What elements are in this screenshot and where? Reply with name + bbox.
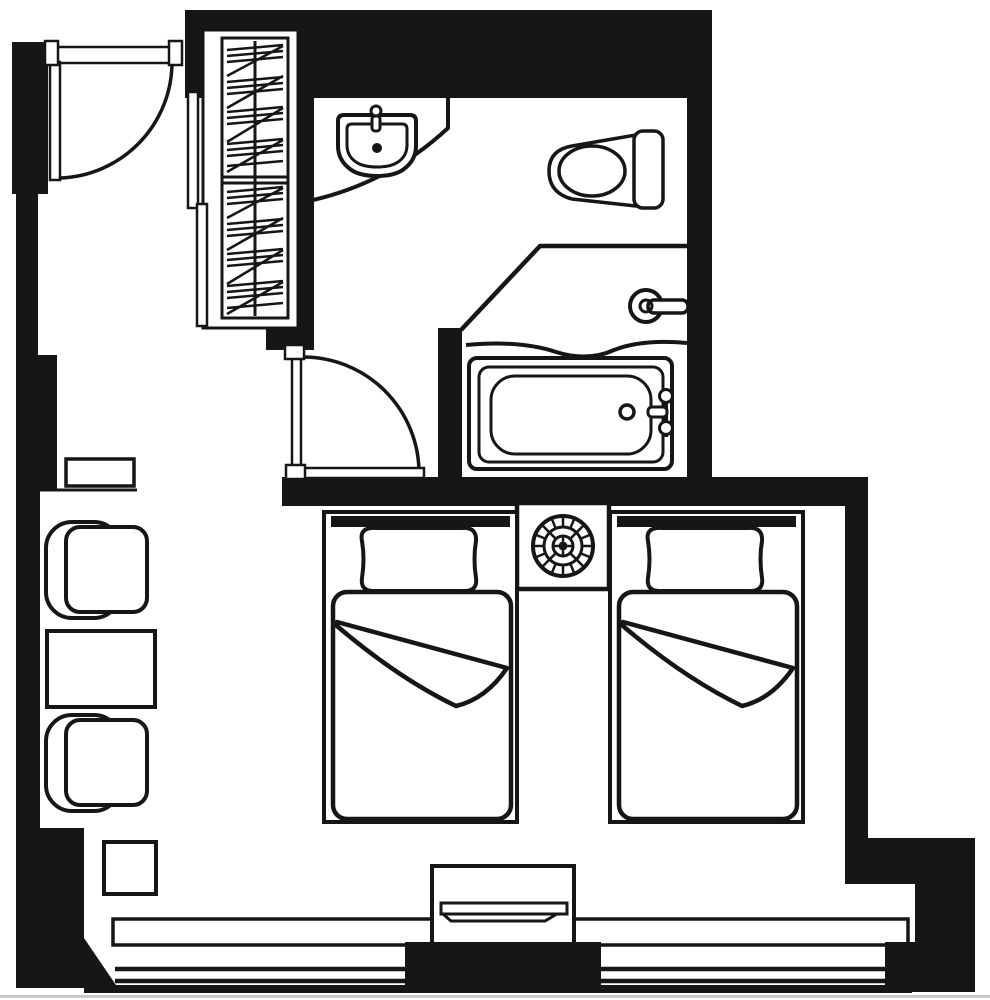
television [441,903,567,914]
entry-door-leaf-closed [56,47,172,63]
tv-cabinet [432,866,574,944]
entry-door-jamb-left [45,41,58,65]
tub-handle-cold [660,422,673,435]
chair-seat [66,527,147,612]
bathroom-door-jamb-top [285,345,304,359]
chair-seat [66,720,147,805]
toilet-seat [559,146,625,196]
bathroom-door-leaf-open [292,357,301,467]
window-sill-band [84,985,912,993]
entry-door-swing-arc [60,62,172,178]
closet-sliding-panel-2 [197,204,207,326]
side-table-square [104,842,156,894]
bathroom-door-leaf [298,468,424,478]
shower-valve-handle [648,300,688,313]
coffee-table [47,631,155,707]
tub-drain [620,405,634,419]
bed-pillow [362,528,477,591]
entry-door-leaf-open [50,62,60,180]
photo-edge-line [0,995,990,998]
wall-bath-post [438,328,462,480]
bed-headboard [617,516,796,527]
entry-door-jamb-right [169,41,182,65]
sink-drain [372,143,382,153]
toilet [549,131,663,208]
bathroom-door-jamb-bottom [286,465,305,479]
bed-headboard [331,516,510,527]
wall-left-low [16,490,40,832]
floor-plan-image [0,0,990,1000]
wall-left-pilaster [16,355,57,490]
wall-left-top [12,42,48,194]
shower-area [461,246,688,357]
sink-faucet-stem [372,116,380,131]
vanity [313,98,448,200]
twin-bed-right [610,512,803,822]
bathroom-door [285,345,424,479]
lounge-chair-upper [46,522,147,618]
closet [188,30,298,328]
wall-right [845,506,868,884]
closet-sliding-panel-1 [188,92,198,208]
bathtub [469,358,673,469]
entry-door [45,41,182,180]
shelf-top [66,459,134,486]
wall-corner-block [885,942,975,992]
shower-curtain [466,342,687,357]
wall-bath-right [687,10,712,480]
sunburst-center-dot [559,542,568,551]
bathroom-door-swing-arc [303,357,419,473]
wall-left-mid [16,194,38,358]
bed-pillow [648,528,763,591]
window-pier [405,942,601,986]
wall-corner-left [16,828,84,988]
toilet-tank [634,131,663,208]
tub-handle-hot [660,390,673,403]
floor-plan-svg [0,0,990,1000]
tub-spout [648,407,667,417]
nightstand [517,503,609,589]
twin-bed-left [324,512,517,822]
lounge-chair-lower [46,715,147,811]
